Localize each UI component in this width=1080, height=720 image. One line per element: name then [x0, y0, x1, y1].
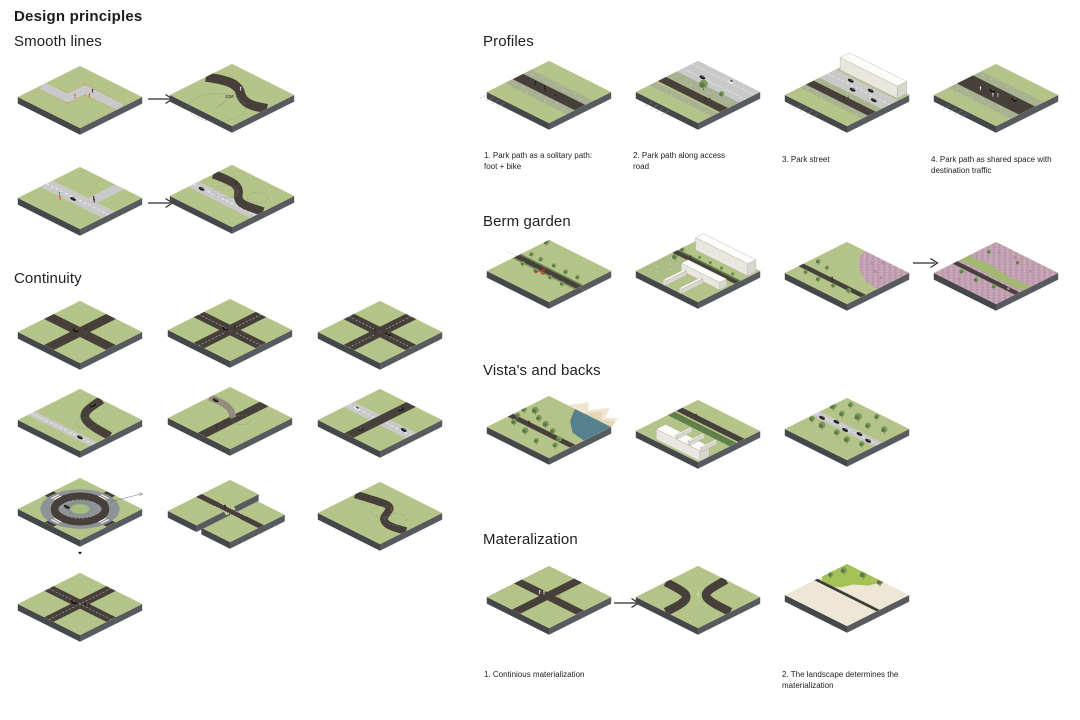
tile-s-curve-over-road	[166, 161, 298, 248]
tile-board: 20M	[0, 0, 1080, 720]
tile-zigzag-path	[14, 62, 146, 149]
tile-profile-shared-space	[930, 60, 1062, 147]
tile-bridge-crossing	[164, 476, 296, 563]
tile-berm-meadow-road	[781, 238, 913, 325]
tile-y-merge	[164, 383, 296, 470]
tile-roundabout	[14, 474, 146, 561]
tile-profile-park-street	[781, 60, 913, 147]
tile-crossroads-marked-2	[314, 297, 446, 384]
tile-curve-junction	[14, 385, 146, 472]
tile-curve-20m: 20M	[166, 60, 298, 147]
tile-profile-solitary-path	[483, 57, 615, 144]
svg-text:20M: 20M	[225, 94, 234, 99]
tile-crossroads-dark	[14, 297, 146, 384]
tile-profile-access-road	[632, 57, 764, 144]
tile-berm-path-trees	[483, 236, 615, 323]
tile-cross-light-dark	[314, 385, 446, 472]
tile-berm-meadow-full	[930, 238, 1062, 325]
tile-berm-gardens-buildings	[632, 236, 764, 323]
tile-road-crossing	[14, 163, 146, 250]
tile-s-bend	[314, 478, 446, 565]
tile-merged-materialization	[632, 562, 764, 649]
tile-vista-tree-road	[781, 394, 913, 481]
tile-vista-hedge-building	[632, 396, 764, 483]
tile-vista-water-mountains	[483, 392, 615, 479]
tile-landscape-materialization	[781, 560, 913, 647]
tile-crossroads-marked	[164, 295, 296, 382]
tile-crossroads-busy	[14, 569, 146, 656]
tile-continuous-materialization	[483, 562, 615, 649]
design-principles-diagram: Design principles Smooth lines Continuit…	[0, 0, 1080, 720]
